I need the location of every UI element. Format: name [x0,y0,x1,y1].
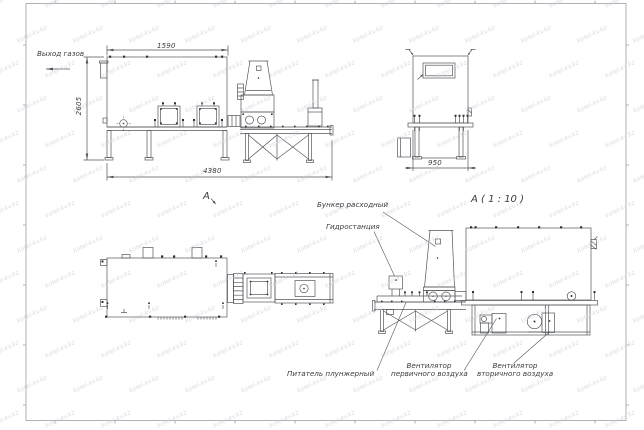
hydraulic-station-label: Гидростанция [326,222,380,231]
side-view-a [398,50,477,172]
view-a-arrow [211,199,216,205]
plunger-feeder-side [373,291,467,314]
fan-compartment [472,305,590,335]
main-side-view [373,226,598,335]
primary-air-fan-label-line2: первичного воздуха [391,369,468,378]
plan-feeder [228,274,276,304]
secondary-air-fan-label-line2: вторичного воздуха [477,369,553,378]
feed-hopper-label: Бункер расходный [317,200,388,209]
plunger-feeder-label: Питатель плунжерный [287,369,374,378]
view-a-mark-label: А [203,191,210,202]
primary-air-fan-label: Вентилятор первичного воздуха [391,362,467,379]
conveyor-front [240,126,333,136]
side-a-legs [413,127,466,159]
plan-bolts [102,255,223,317]
drawing-sheet: kotel-kv.kzkotel-kv.kzkotel-kv.kzkotel-k… [0,0,644,430]
primary-air-fan [480,314,506,334]
furnace-body-side [462,226,598,305]
side-a-opening [418,63,456,80]
sheet-frame [23,1,629,424]
side-a-body [413,56,468,123]
dim-950-text: 950 [428,159,442,167]
secondary-air-fan [527,313,554,333]
front-platform-and-legs [105,119,229,160]
dim-4380-text: 4380 [203,167,222,175]
plan-top-fittings [101,248,203,307]
side-a-side-box [398,138,411,157]
hydraulic-station-box [389,276,403,296]
front-box-2 [197,102,219,127]
hopper-side [424,231,456,291]
gas-outlet-arrow [46,68,70,71]
gas-outlet-label: Выход газов [37,49,84,58]
hopper-front [238,61,273,100]
feeder-truss-side [379,310,453,334]
dim-2605-text: 2605 [75,93,83,119]
plan-conveyor [244,272,333,305]
side-a-top-marks [406,50,476,56]
plan-body [107,258,227,317]
feeder-pipe-front [308,80,322,126]
furnace-body-front [100,57,228,131]
plan-view [101,248,334,320]
gas-stub-side [591,237,598,250]
dim-line-2605 [84,57,105,160]
front-view [46,46,333,205]
conveyor-truss-front [244,134,314,163]
plan-section-marks [107,260,224,312]
front-box-1 [158,102,180,127]
plan-comb-strips [158,317,216,320]
view-a-scale-label: А ( 1 : 10 ) [471,194,524,205]
dim-1590-text: 1590 [157,42,176,50]
secondary-air-fan-label: Вентилятор вторичного воздуха [477,362,553,379]
fan-housing-front [228,95,274,128]
